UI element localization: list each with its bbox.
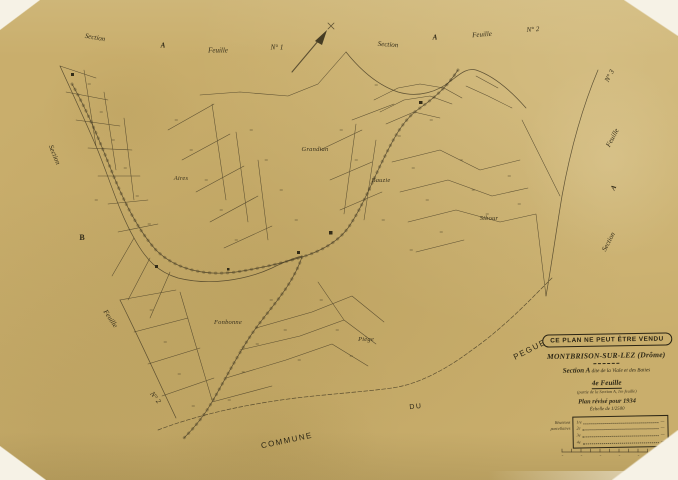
revision-table-label: Réunions parcellaires (546, 417, 573, 449)
not-for-sale-stamp: CE PLAN NE PEUT ÊTRE VENDU (542, 332, 672, 347)
margin-label-feuille: Feuille (472, 31, 492, 39)
section-label: Section A (563, 366, 591, 374)
margin-label-section-letter: A (433, 35, 438, 42)
margin-label-section: Section (377, 41, 398, 49)
revision-label: Plan révisé pour 1934 (546, 397, 668, 406)
north-arrow-icon (292, 23, 334, 72)
margin-label-sheet-number: N° 2 (526, 26, 539, 34)
place-name: Sibour (480, 216, 499, 223)
section-line: Section A dite de la Viale et des Baties (545, 365, 667, 375)
place-name: Grandian (302, 147, 329, 154)
cadastral-map-sheet: Section A Feuille N° 1 Section A Feuille… (0, 0, 678, 480)
sheet-note: (partie de la Section A, 1re feuille) (546, 388, 668, 395)
revision-table-rows: 1re— 2e— 3e— 4e— (572, 415, 669, 449)
title-block: MONTBRISON-SUR-LEZ (Drôme) Section A dit… (545, 350, 669, 449)
scale-bar (562, 449, 648, 456)
section-description: dite de la Viale et des Baties (590, 367, 650, 374)
revision-table: Réunions parcellaires 1re— 2e— 3e— 4e— (546, 415, 669, 449)
margin-label-feuille: Feuille (208, 48, 228, 55)
place-name: Piège (358, 337, 374, 344)
place-name: Fonbonne (214, 320, 242, 327)
title-underline (593, 361, 619, 364)
revision-table-row: 4e— (577, 438, 665, 446)
margin-label-section-letter: B (79, 234, 84, 242)
place-name: Bauzie (372, 178, 391, 185)
sheet-label: 4e Feuille (546, 378, 668, 388)
scale-label: Échelle de 1/2500 (546, 406, 668, 413)
place-name: Aires (174, 176, 188, 183)
neighbour-commune-label: DU (409, 403, 423, 411)
margin-label-sheet-number: N° 1 (271, 45, 284, 52)
building-marks (71, 73, 423, 271)
margin-label-section-letter: A (161, 43, 166, 50)
map-title: MONTBRISON-SUR-LEZ (Drôme) (545, 350, 667, 361)
